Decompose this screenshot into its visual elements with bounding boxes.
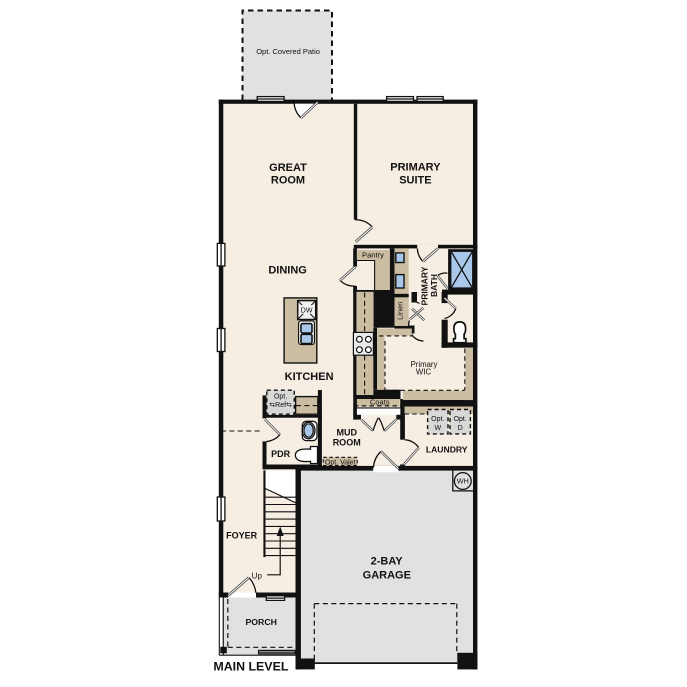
svg-text:Up: Up (252, 572, 263, 581)
svg-text:PRIMARY: PRIMARY (390, 161, 441, 173)
svg-text:Coats: Coats (370, 397, 390, 406)
svg-text:Opt. Valet: Opt. Valet (325, 459, 356, 466)
svg-text:MAIN LEVEL: MAIN LEVEL (213, 659, 288, 673)
svg-text:PRIMARY: PRIMARY (419, 266, 429, 305)
svg-text:PDR: PDR (271, 449, 291, 459)
svg-text:⇆Ref⇆: ⇆Ref⇆ (269, 402, 292, 409)
svg-text:PORCH: PORCH (246, 617, 277, 627)
svg-text:Opt. Covered Patio: Opt. Covered Patio (256, 47, 320, 56)
svg-text:Opt.: Opt. (274, 394, 287, 401)
svg-text:LAUNDRY: LAUNDRY (426, 445, 468, 455)
svg-text:DW: DW (301, 306, 313, 315)
svg-text:KITCHEN: KITCHEN (285, 371, 334, 383)
svg-text:GREAT: GREAT (269, 162, 307, 174)
svg-text:W: W (434, 425, 441, 432)
svg-text:Opt.: Opt. (454, 416, 467, 423)
svg-text:Opt.: Opt. (431, 416, 444, 423)
svg-text:FOYER: FOYER (226, 530, 258, 540)
svg-text:WIC: WIC (416, 368, 432, 377)
svg-text:BATH: BATH (429, 274, 439, 297)
svg-text:2-BAY: 2-BAY (371, 556, 404, 568)
svg-text:ROOM: ROOM (271, 175, 305, 187)
svg-text:SUITE: SUITE (399, 175, 431, 187)
svg-text:Pantry: Pantry (362, 250, 384, 259)
svg-text:DINING: DINING (268, 264, 307, 276)
svg-text:WH: WH (457, 477, 469, 486)
svg-text:MUD: MUD (337, 428, 358, 438)
svg-text:Linen: Linen (396, 302, 405, 320)
svg-text:GARAGE: GARAGE (363, 569, 411, 581)
svg-text:ROOM: ROOM (333, 437, 361, 447)
svg-text:D: D (458, 425, 463, 432)
